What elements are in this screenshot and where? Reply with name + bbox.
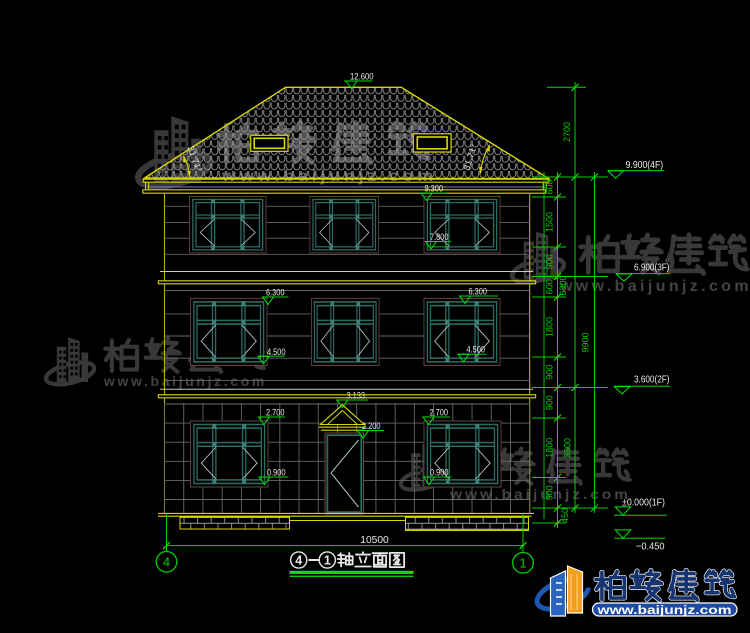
svg-text:2700: 2700: [562, 122, 573, 142]
svg-text:4: 4: [295, 554, 302, 568]
svg-text:6300: 6300: [558, 276, 569, 296]
svg-text:600: 600: [545, 180, 556, 195]
svg-text:4.500: 4.500: [267, 347, 286, 358]
svg-text:6.300: 6.300: [469, 287, 488, 298]
svg-text:7.800: 7.800: [430, 232, 449, 243]
svg-text:1: 1: [324, 554, 331, 568]
svg-text:10500: 10500: [360, 534, 389, 546]
svg-text:0.900: 0.900: [430, 468, 449, 479]
svg-text:2.700: 2.700: [430, 408, 449, 419]
svg-text:900: 900: [545, 254, 556, 269]
svg-text:0.900: 0.900: [267, 468, 286, 479]
svg-text:2.700: 2.700: [266, 408, 285, 419]
svg-text:600: 600: [545, 279, 556, 294]
svg-text:www.baijunjz.com: www.baijunjz.com: [596, 605, 731, 617]
svg-text:900: 900: [545, 395, 556, 410]
svg-text:900: 900: [545, 485, 556, 500]
svg-text:1800: 1800: [545, 438, 556, 458]
svg-text:450: 450: [560, 508, 571, 523]
svg-text:2.200: 2.200: [362, 421, 381, 432]
svg-text:12.600: 12.600: [350, 72, 374, 83]
svg-text:1: 1: [519, 556, 526, 571]
svg-text:3.133: 3.133: [347, 391, 366, 402]
svg-text:9.900(4F): 9.900(4F): [626, 159, 664, 171]
svg-text:1500: 1500: [545, 212, 556, 232]
svg-text:6.300: 6.300: [266, 288, 285, 299]
svg-text:−0.450: −0.450: [636, 541, 665, 553]
svg-text:9.300: 9.300: [425, 184, 444, 195]
svg-text:3600: 3600: [563, 438, 574, 458]
svg-text:www.baijunjz.com: www.baijunjz.com: [103, 374, 267, 389]
svg-text:www.baijunjz.com: www.baijunjz.com: [559, 278, 750, 295]
svg-text:4.500: 4.500: [467, 345, 486, 356]
svg-text:9900: 9900: [581, 333, 592, 353]
svg-text:1800: 1800: [545, 317, 556, 337]
svg-text:4: 4: [163, 555, 170, 570]
svg-text:6.900(3F): 6.900(3F): [634, 262, 670, 274]
svg-text:3.600(2F): 3.600(2F): [634, 374, 670, 386]
svg-text:900: 900: [545, 365, 556, 380]
svg-text:±0.000(1F): ±0.000(1F): [622, 497, 665, 509]
